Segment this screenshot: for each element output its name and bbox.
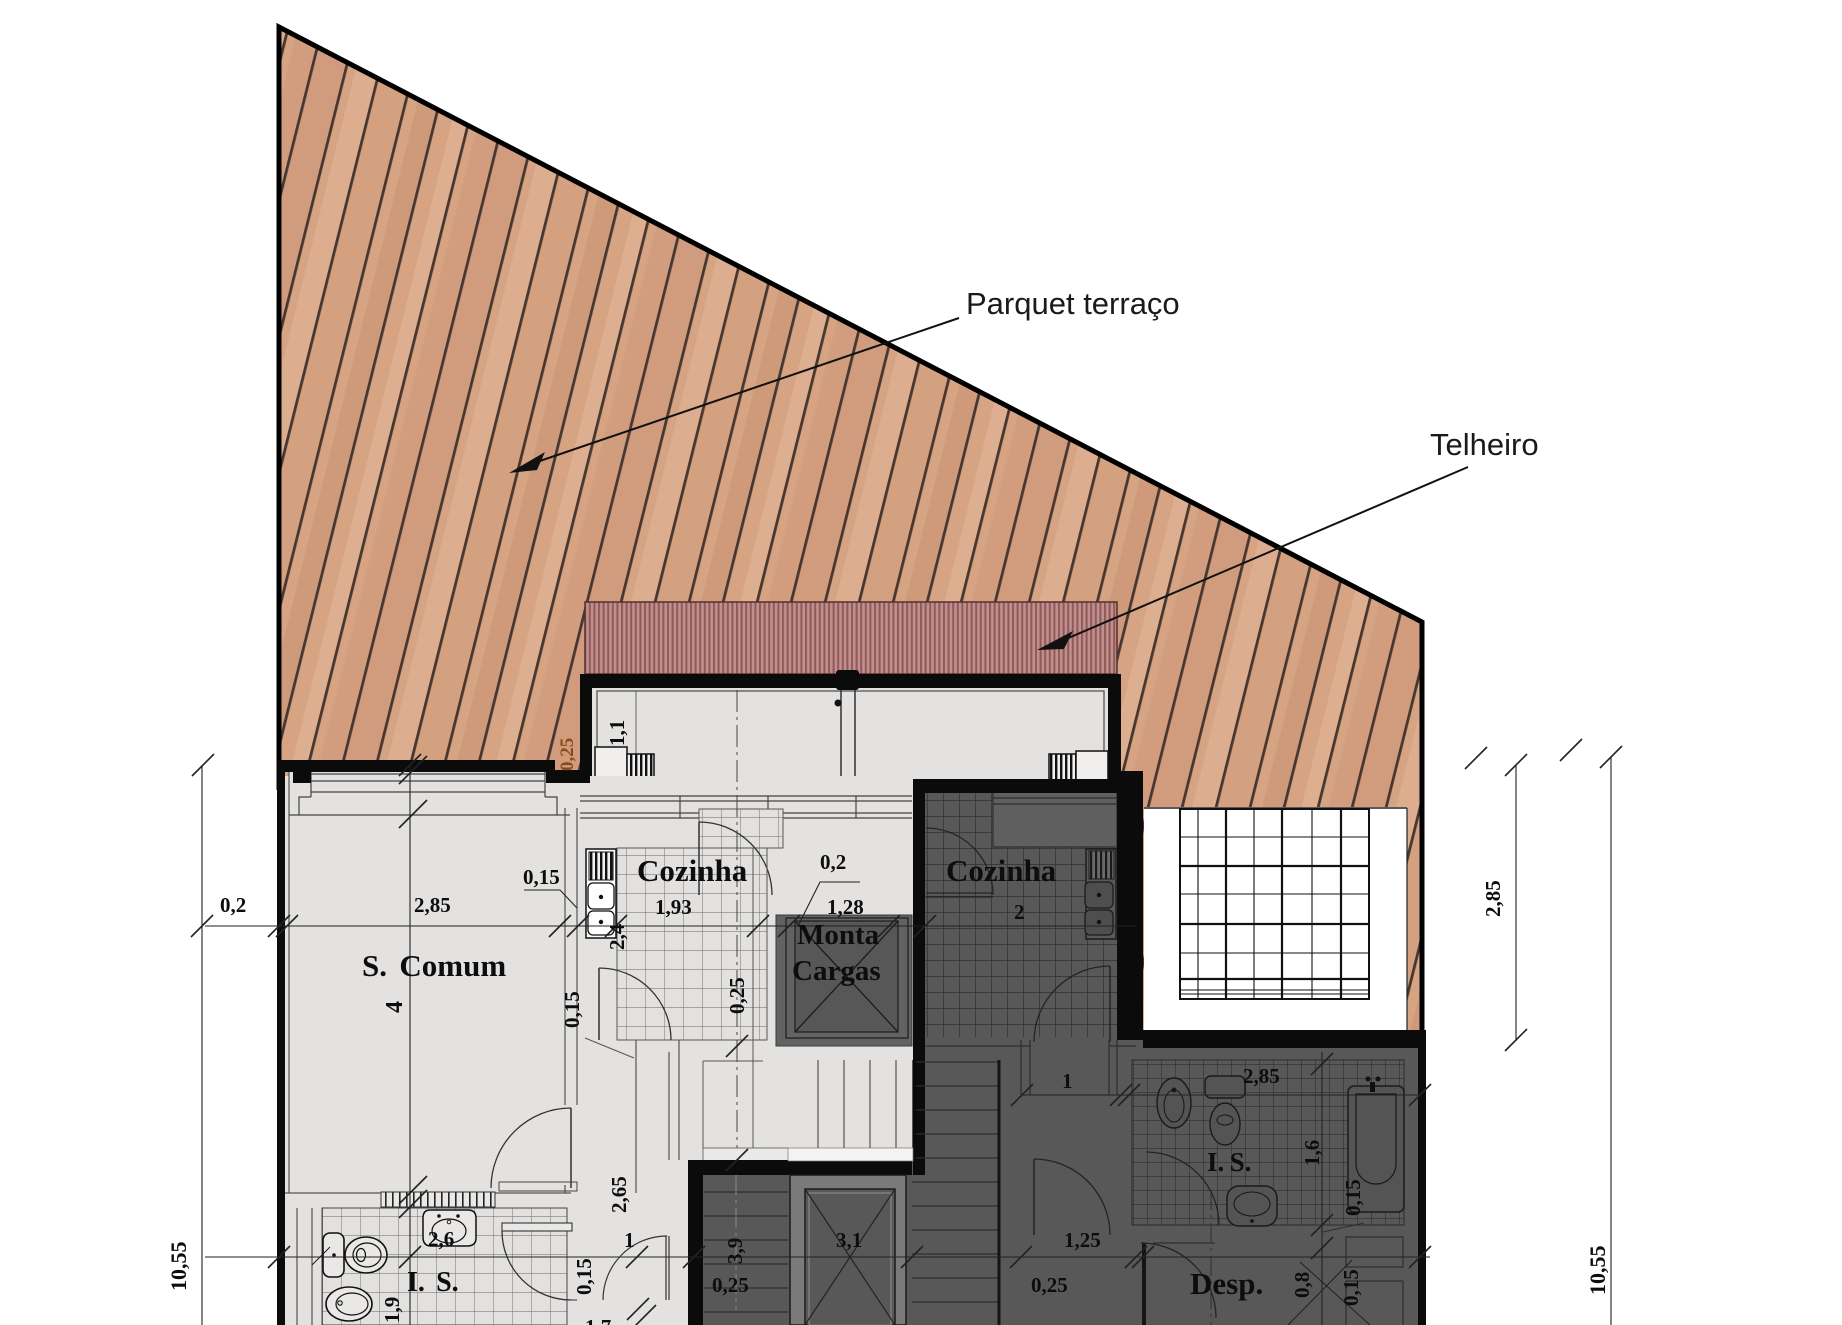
svg-text:1,7: 1,7 bbox=[585, 1315, 611, 1325]
svg-text:3,9: 3,9 bbox=[723, 1238, 747, 1264]
svg-text:Desp.: Desp. bbox=[1190, 1266, 1263, 1301]
svg-text:10,55: 10,55 bbox=[166, 1242, 191, 1292]
svg-text:10,55: 10,55 bbox=[1585, 1246, 1610, 1296]
svg-text:0,2: 0,2 bbox=[220, 893, 246, 917]
svg-text:I. S.: I. S. bbox=[1207, 1147, 1251, 1177]
svg-text:1: 1 bbox=[624, 1228, 635, 1252]
svg-text:2,4: 2,4 bbox=[605, 923, 629, 950]
svg-text:1,9: 1,9 bbox=[380, 1297, 404, 1323]
svg-text:1,6: 1,6 bbox=[1300, 1140, 1324, 1166]
svg-text:0,25: 0,25 bbox=[712, 1273, 749, 1297]
svg-text:Parquet terraço: Parquet terraço bbox=[966, 286, 1180, 321]
svg-text:0,15: 0,15 bbox=[1341, 1179, 1365, 1216]
svg-text:0,25: 0,25 bbox=[725, 977, 749, 1014]
svg-text:1,1: 1,1 bbox=[605, 720, 629, 746]
svg-text:0,15: 0,15 bbox=[560, 991, 584, 1028]
svg-text:0,8: 0,8 bbox=[1290, 1272, 1314, 1298]
svg-text:3,1: 3,1 bbox=[836, 1228, 862, 1252]
svg-text:0,15: 0,15 bbox=[1339, 1269, 1363, 1306]
svg-text:Cargas: Cargas bbox=[792, 955, 881, 987]
svg-text:Cozinha: Cozinha bbox=[637, 853, 748, 888]
svg-text:2,85: 2,85 bbox=[1243, 1064, 1280, 1088]
svg-text:I. S.: I. S. bbox=[407, 1267, 459, 1298]
svg-text:1,28: 1,28 bbox=[827, 895, 864, 919]
svg-text:S. Comum: S. Comum bbox=[362, 948, 506, 983]
svg-text:2,6: 2,6 bbox=[428, 1227, 454, 1251]
svg-text:0,25: 0,25 bbox=[1031, 1273, 1068, 1297]
svg-text:1,93: 1,93 bbox=[655, 895, 692, 919]
svg-text:0,25: 0,25 bbox=[557, 738, 578, 771]
svg-text:0,15: 0,15 bbox=[572, 1258, 596, 1295]
svg-text:2,85: 2,85 bbox=[414, 893, 451, 917]
svg-text:1,25: 1,25 bbox=[1064, 1228, 1101, 1252]
svg-text:2: 2 bbox=[1014, 900, 1025, 924]
svg-text:4: 4 bbox=[382, 1001, 408, 1013]
svg-text:1: 1 bbox=[1062, 1069, 1073, 1093]
svg-text:2,85: 2,85 bbox=[1481, 880, 1505, 917]
svg-text:0,15: 0,15 bbox=[523, 865, 560, 889]
svg-text:Telheiro: Telheiro bbox=[1430, 427, 1539, 462]
svg-text:2,65: 2,65 bbox=[607, 1176, 631, 1213]
svg-text:Monta: Monta bbox=[797, 919, 880, 951]
svg-text:Cozinha: Cozinha bbox=[946, 853, 1057, 888]
svg-text:0,2: 0,2 bbox=[820, 850, 846, 874]
